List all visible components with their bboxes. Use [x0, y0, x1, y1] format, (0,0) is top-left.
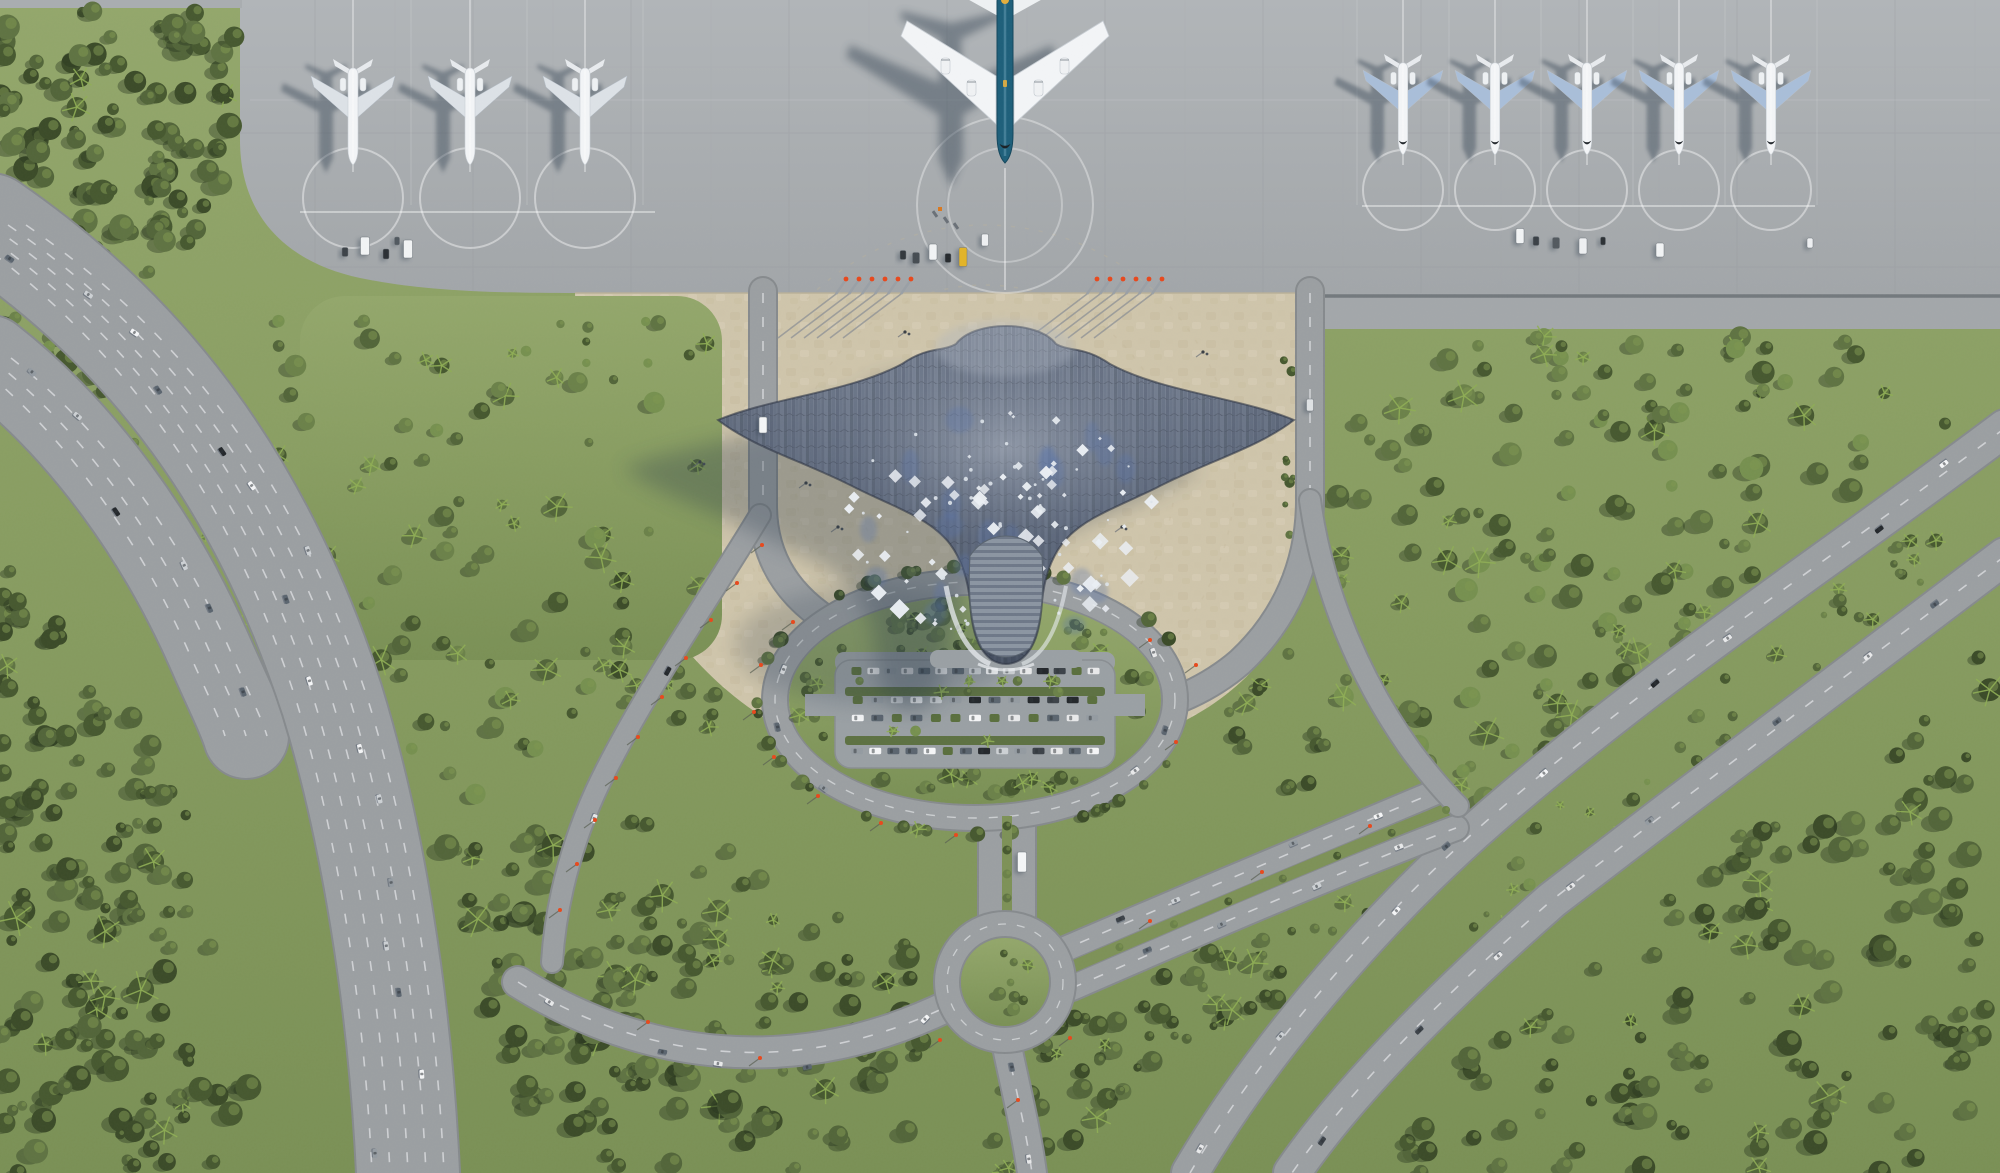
fx-layer — [0, 0, 2000, 1173]
aerial-render-canvas — [0, 0, 2000, 1173]
aerial-render — [0, 0, 2000, 1173]
film-grain — [0, 0, 2000, 1173]
